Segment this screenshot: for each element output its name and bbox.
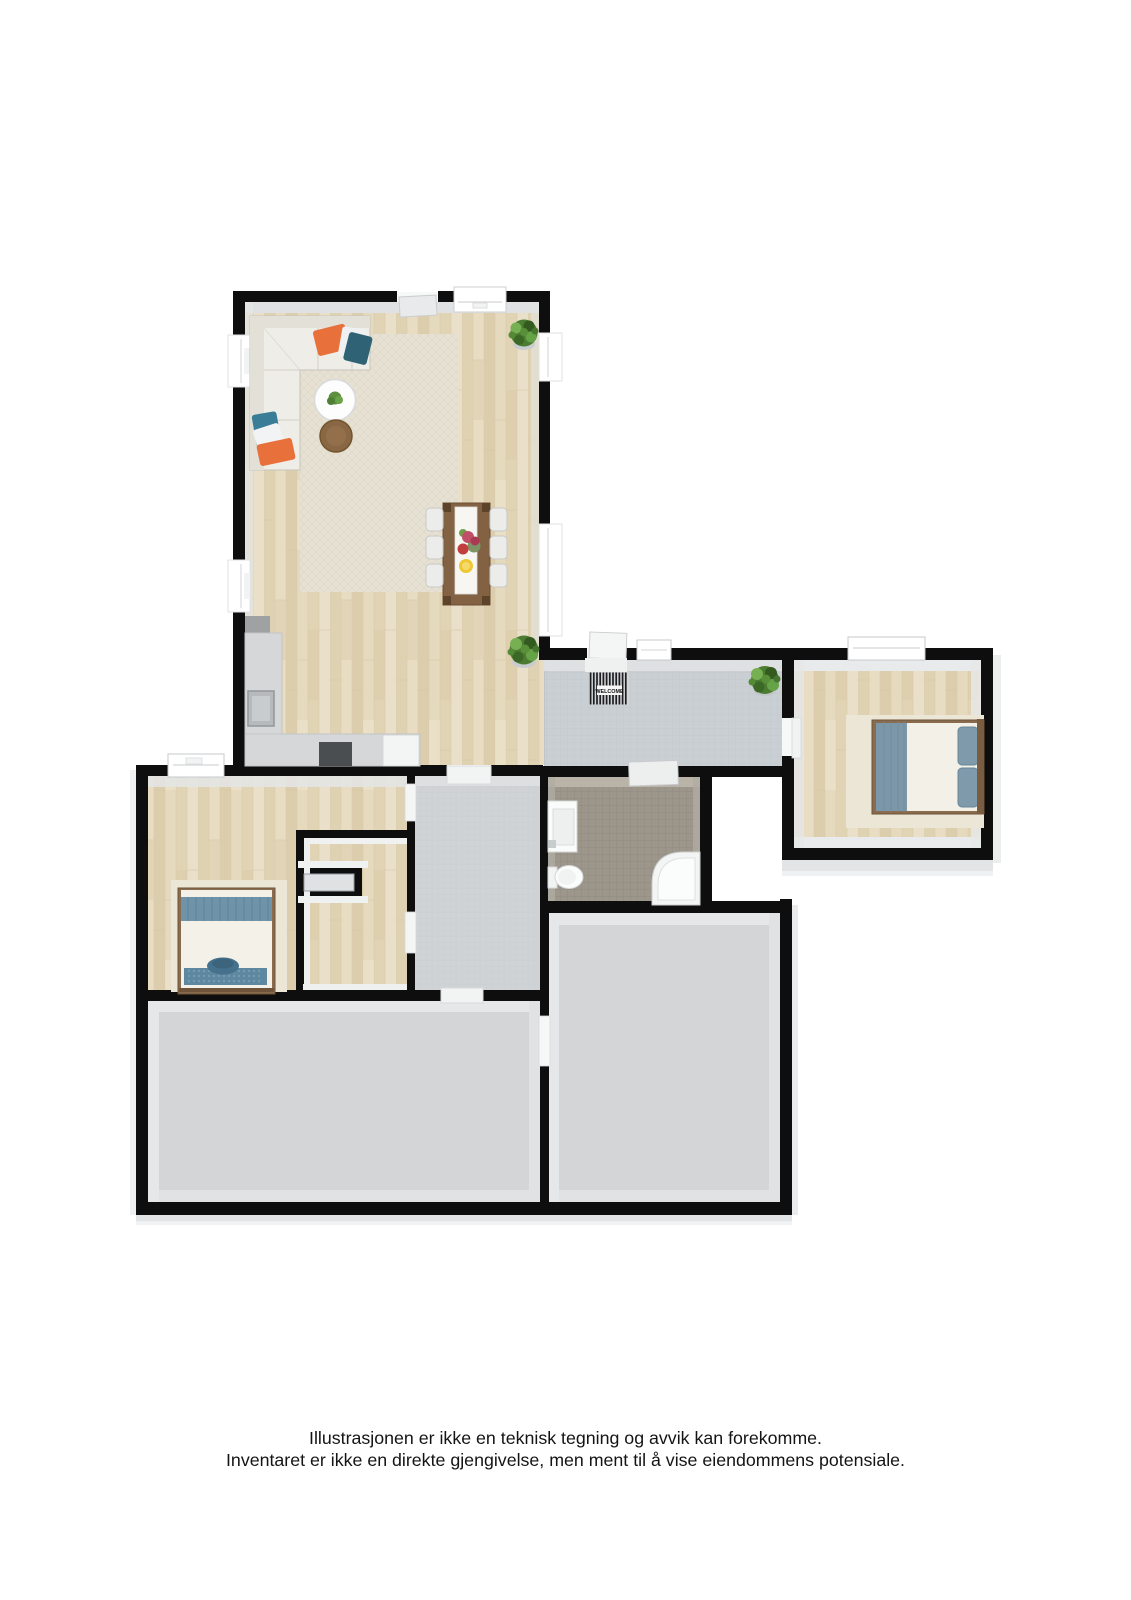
svg-text:WELCOME: WELCOME: [595, 689, 624, 695]
